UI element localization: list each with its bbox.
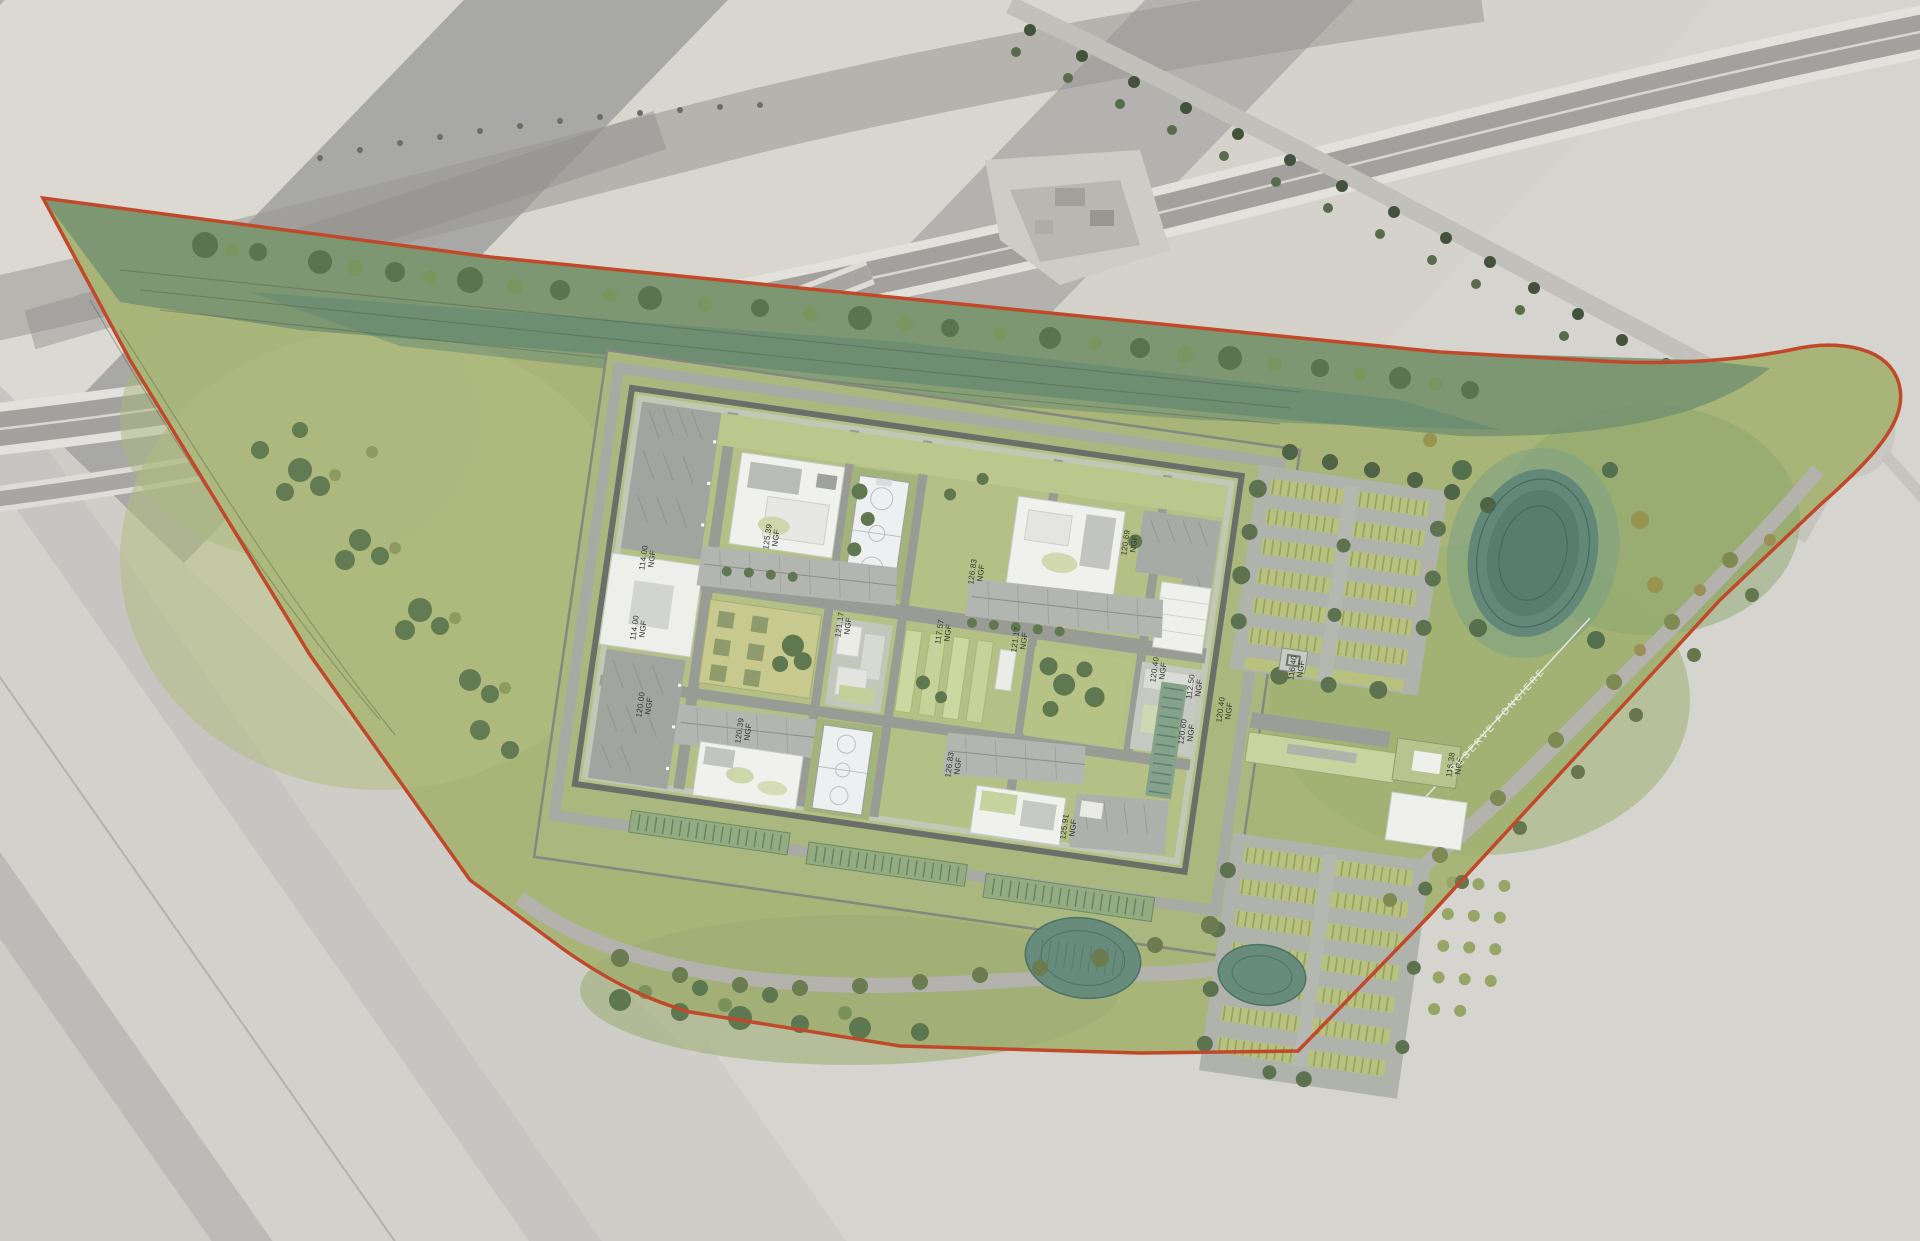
gatehouse-white [1385, 792, 1467, 850]
site-plan-stage: 125.39NGF114.00NGF114.00NGF120.00NGF120.… [0, 0, 1920, 1241]
housing-unit-nw [729, 452, 845, 558]
site-plan-svg: 125.39NGF114.00NGF114.00NGF120.00NGF120.… [0, 0, 1920, 1241]
housing-unit-ne [1006, 496, 1125, 599]
tree-courtyard [1023, 646, 1131, 747]
basketball-court-south [803, 718, 882, 820]
compound [534, 350, 1300, 957]
